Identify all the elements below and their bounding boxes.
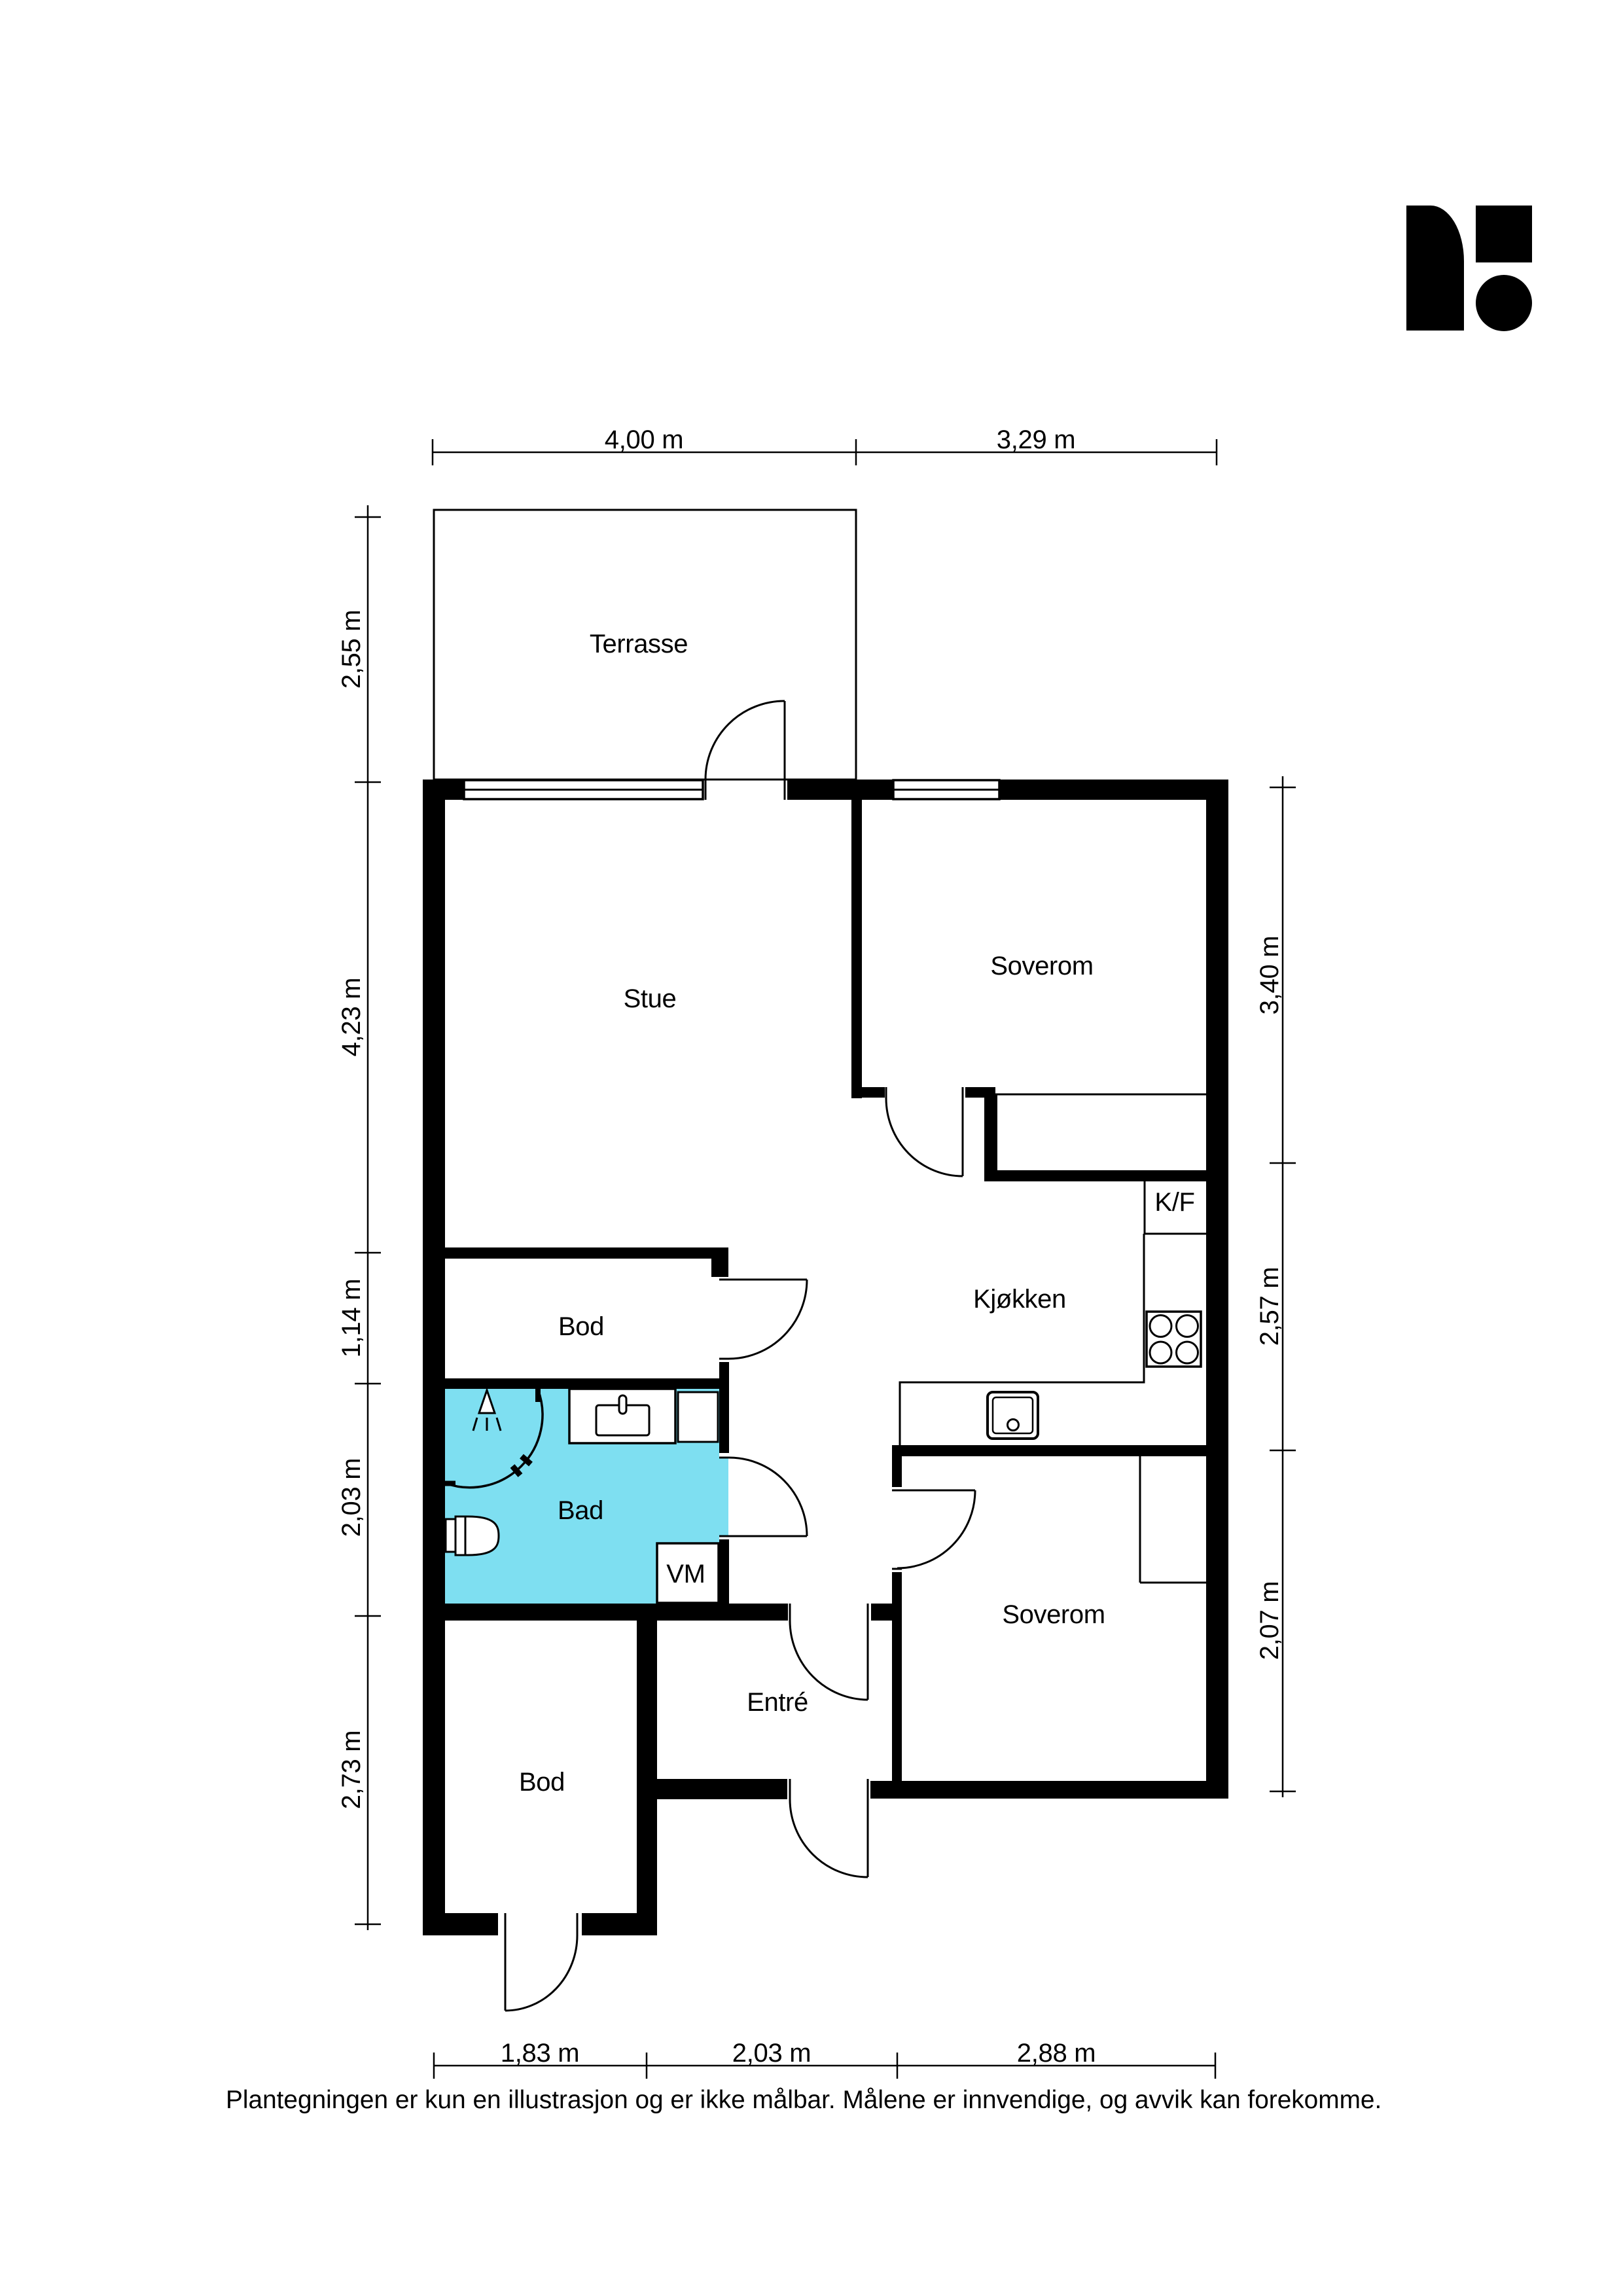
svg-text:1,83 m: 1,83 m xyxy=(501,2039,580,2068)
svg-text:4,00 m: 4,00 m xyxy=(605,425,684,454)
svg-text:2,73 m: 2,73 m xyxy=(337,1731,366,1810)
svg-text:Kjøkken: Kjøkken xyxy=(973,1285,1066,1314)
svg-text:Bad: Bad xyxy=(558,1496,603,1525)
svg-text:3,40 m: 3,40 m xyxy=(1255,936,1284,1015)
svg-text:4,23 m: 4,23 m xyxy=(337,978,366,1057)
svg-text:Soverom: Soverom xyxy=(990,952,1093,980)
svg-text:2,57 m: 2,57 m xyxy=(1255,1267,1284,1346)
svg-text:Bod: Bod xyxy=(558,1312,604,1341)
svg-text:1,14 m: 1,14 m xyxy=(337,1279,366,1358)
svg-text:Soverom: Soverom xyxy=(1002,1600,1105,1629)
svg-text:2,07 m: 2,07 m xyxy=(1255,1581,1284,1660)
svg-text:2,03 m: 2,03 m xyxy=(337,1458,366,1537)
svg-text:3,29 m: 3,29 m xyxy=(997,425,1076,454)
svg-text:Bod: Bod xyxy=(519,1768,565,1797)
svg-text:Terrasse: Terrasse xyxy=(590,630,688,658)
svg-text:Plantegningen er kun en illust: Plantegningen er kun en illustrasjon og … xyxy=(226,2086,1382,2114)
svg-text:K/F: K/F xyxy=(1154,1188,1194,1217)
svg-text:2,03 m: 2,03 m xyxy=(732,2039,811,2068)
svg-text:2,55 m: 2,55 m xyxy=(337,610,366,689)
svg-text:Stue: Stue xyxy=(624,984,677,1013)
svg-text:Entré: Entré xyxy=(747,1688,808,1717)
svg-text:2,88 m: 2,88 m xyxy=(1017,2039,1096,2068)
svg-text:VM: VM xyxy=(666,1560,705,1588)
